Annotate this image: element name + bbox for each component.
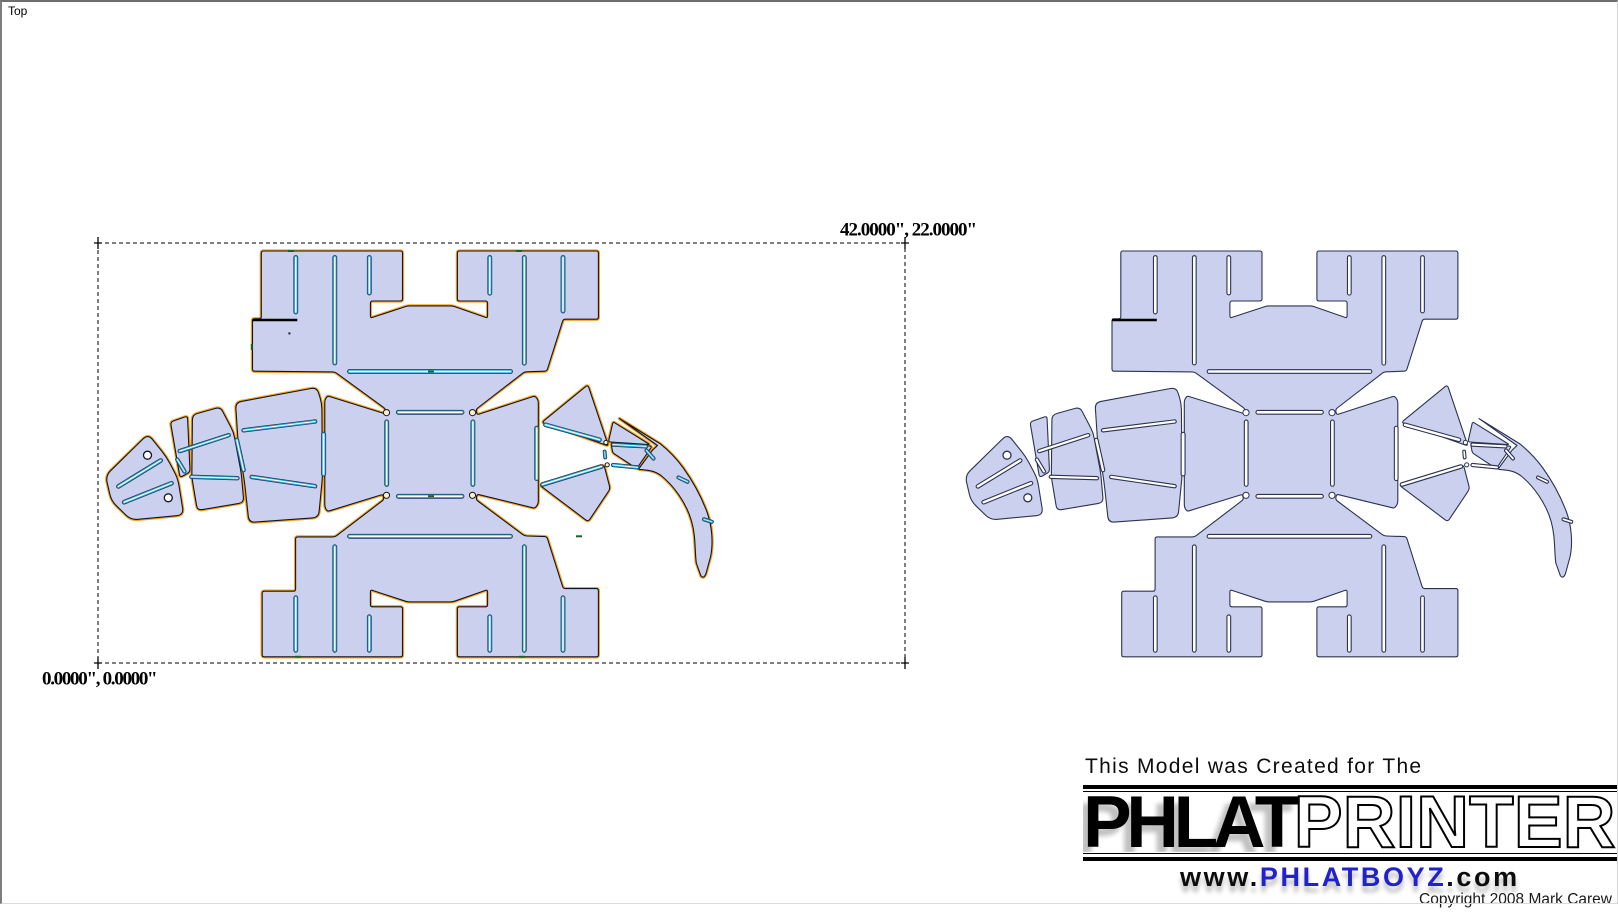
svg-text:0.0000", 0.0000": 0.0000", 0.0000" xyxy=(42,669,156,690)
svg-text:42.0000", 22.0000": 42.0000", 22.0000" xyxy=(840,220,976,241)
